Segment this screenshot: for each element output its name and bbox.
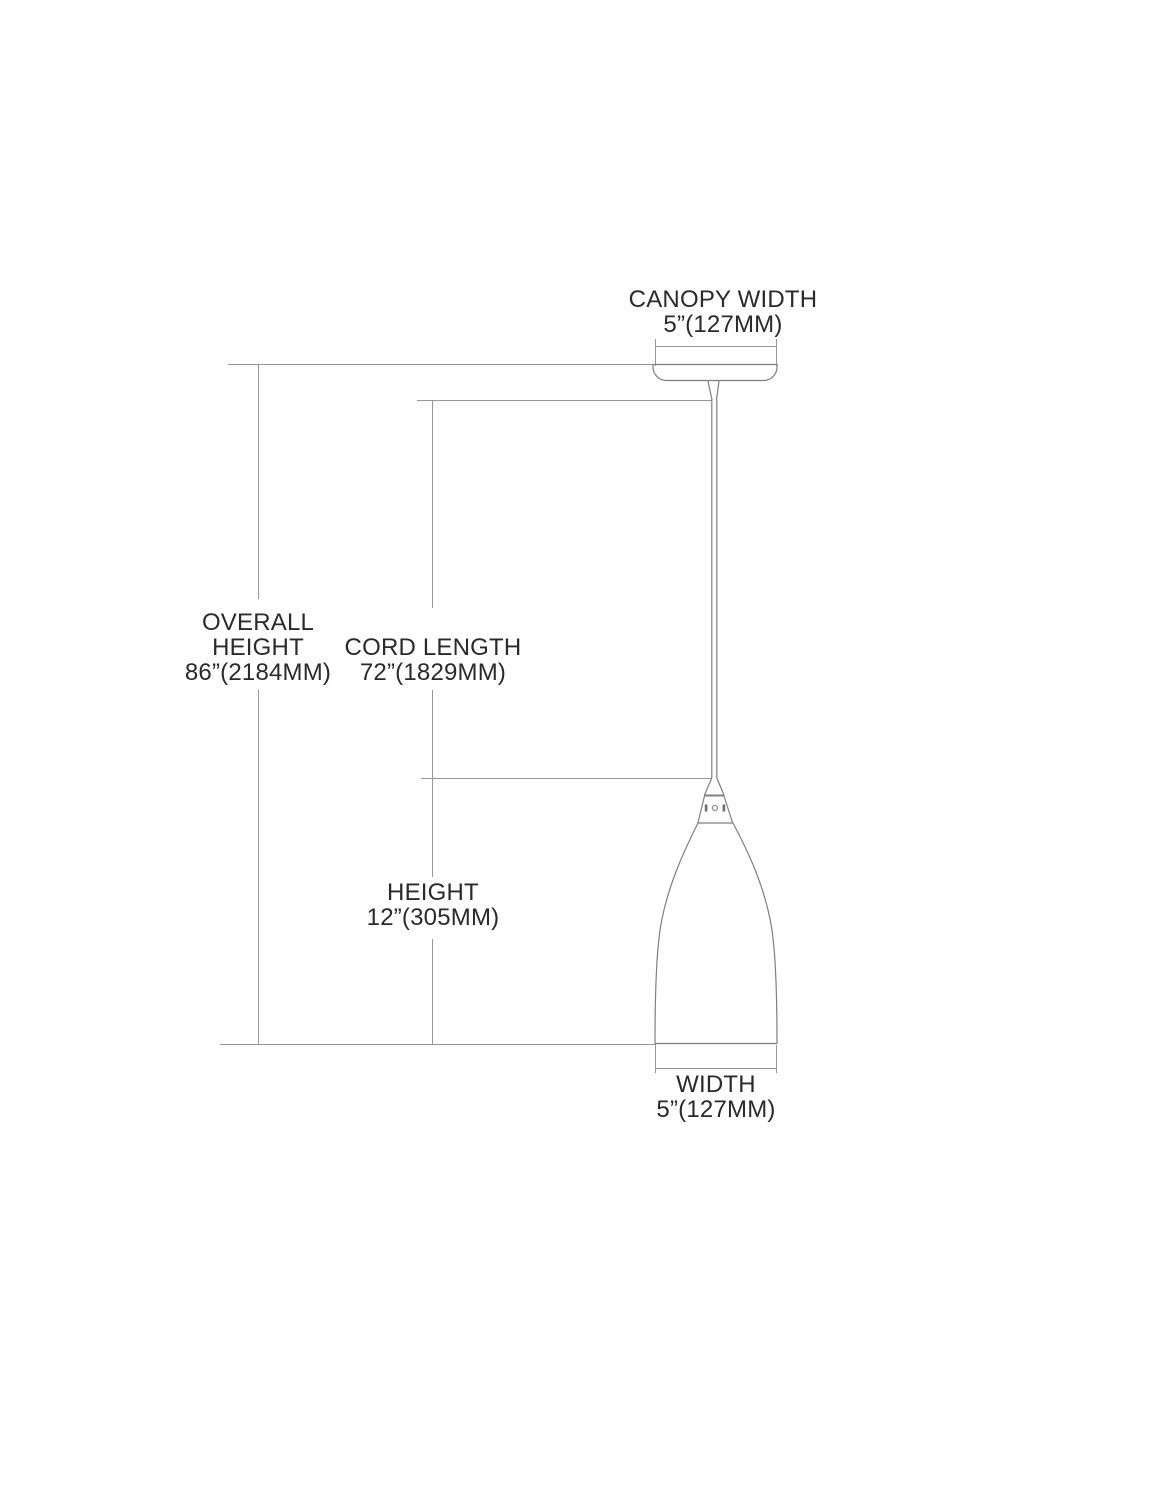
overall-height-label: OVERALL HEIGHT 86”(2184MM) <box>185 610 331 685</box>
cord-line <box>712 400 717 778</box>
canopy-width-bracket <box>655 339 777 366</box>
shade-holder-outline <box>698 796 734 823</box>
height-title: HEIGHT <box>367 880 500 905</box>
overall-height-value: 86”(2184MM) <box>185 660 331 685</box>
canopy-outline <box>653 365 777 381</box>
left-screw-icon <box>705 805 708 812</box>
right-screw-icon <box>723 805 726 812</box>
width-title: WIDTH <box>656 1072 775 1097</box>
width-value: 5”(127MM) <box>656 1097 775 1122</box>
height-value: 12”(305MM) <box>367 905 500 930</box>
socket-outline <box>704 778 725 796</box>
canopy-width-title: CANOPY WIDTH <box>629 287 818 312</box>
canopy-width-label: CANOPY WIDTH 5”(127MM) <box>629 287 818 337</box>
cord-length-label: CORD LENGTH 72”(1829MM) <box>345 635 522 685</box>
width-bracket <box>655 1045 777 1073</box>
canopy-stem-outline <box>708 381 719 400</box>
cord-length-title: CORD LENGTH <box>345 635 522 660</box>
cord-length-value: 72”(1829MM) <box>345 660 522 685</box>
pendant-dimension-diagram: CANOPY WIDTH 5”(127MM) OVERALL HEIGHT 86… <box>0 0 1159 1500</box>
overall-height-title-line2: HEIGHT <box>185 635 331 660</box>
width-label: WIDTH 5”(127MM) <box>656 1072 775 1122</box>
canopy-width-value: 5”(127MM) <box>629 312 818 337</box>
center-screw-icon <box>712 805 717 810</box>
height-label: HEIGHT 12”(305MM) <box>367 880 500 930</box>
diagram-linework <box>0 0 1159 1500</box>
extension-lines <box>220 365 712 1045</box>
shade-outline <box>655 823 777 1044</box>
overall-height-title-line1: OVERALL <box>185 610 331 635</box>
